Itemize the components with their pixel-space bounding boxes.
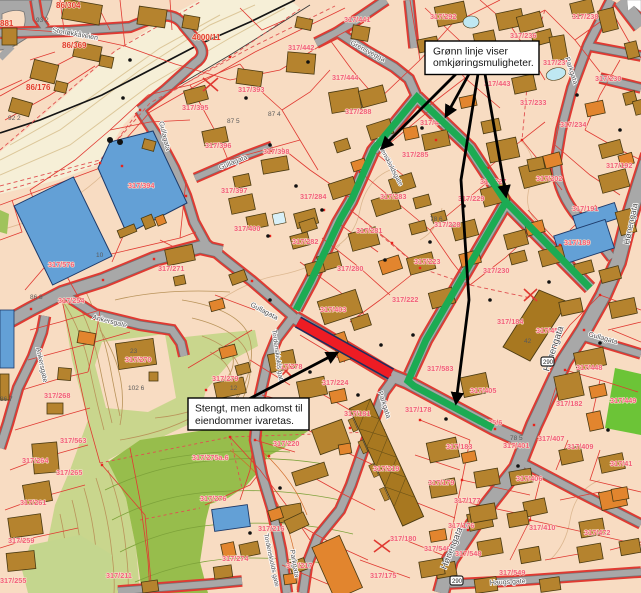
svg-text:317/583: 317/583 bbox=[427, 364, 453, 373]
svg-text:317/406: 317/406 bbox=[516, 474, 542, 483]
svg-text:317/211: 317/211 bbox=[106, 571, 132, 580]
svg-text:317/230: 317/230 bbox=[595, 74, 621, 83]
svg-text:317/182: 317/182 bbox=[556, 399, 582, 408]
svg-text:317/405: 317/405 bbox=[470, 386, 496, 395]
svg-text:317/254: 317/254 bbox=[58, 296, 85, 305]
svg-text:78 6: 78 6 bbox=[430, 216, 443, 223]
svg-text:317/397: 317/397 bbox=[221, 186, 247, 195]
svg-text:23: 23 bbox=[130, 348, 138, 355]
svg-text:317/179: 317/179 bbox=[428, 478, 454, 487]
svg-text:Stengt, men adkomst til: Stengt, men adkomst til bbox=[195, 404, 303, 415]
svg-text:317/548: 317/548 bbox=[455, 549, 481, 558]
svg-text:317/276: 317/276 bbox=[200, 494, 226, 503]
svg-text:317/202: 317/202 bbox=[536, 174, 562, 183]
svg-text:317/270: 317/270 bbox=[125, 355, 151, 364]
svg-text:317/230: 317/230 bbox=[483, 266, 509, 275]
svg-text:eiendommer ivaretas.: eiendommer ivaretas. bbox=[195, 416, 294, 427]
svg-text:102 6: 102 6 bbox=[128, 385, 145, 392]
svg-text:87 5: 87 5 bbox=[227, 118, 240, 125]
svg-text:12: 12 bbox=[230, 385, 238, 392]
svg-text:317/398: 317/398 bbox=[263, 147, 289, 156]
svg-text:93 2: 93 2 bbox=[36, 17, 49, 24]
svg-text:317/271: 317/271 bbox=[158, 264, 184, 273]
svg-text:317/184: 317/184 bbox=[497, 317, 524, 326]
svg-text:317/407: 317/407 bbox=[538, 434, 564, 443]
svg-text:86/369: 86/369 bbox=[62, 41, 87, 50]
svg-text:86 8: 86 8 bbox=[30, 294, 43, 301]
svg-text:317/236: 317/236 bbox=[510, 31, 536, 40]
svg-text:290: 290 bbox=[543, 360, 554, 366]
svg-text:317/259: 317/259 bbox=[8, 536, 34, 545]
svg-text:317/233: 317/233 bbox=[520, 98, 546, 107]
svg-text:317/282: 317/282 bbox=[292, 237, 318, 246]
svg-text:317/576: 317/576 bbox=[48, 260, 74, 269]
svg-text:317/181: 317/181 bbox=[344, 409, 370, 418]
svg-text:317/255: 317/255 bbox=[0, 576, 26, 585]
svg-text:317/268: 317/268 bbox=[44, 391, 70, 400]
svg-text:87 4: 87 4 bbox=[268, 111, 281, 118]
svg-text:86/304: 86/304 bbox=[56, 1, 81, 10]
svg-text:317/175: 317/175 bbox=[370, 571, 396, 580]
svg-text:omkjøringsmuligheter.: omkjøringsmuligheter. bbox=[433, 58, 534, 69]
svg-text:317/403: 317/403 bbox=[320, 305, 346, 314]
svg-text:317/223: 317/223 bbox=[414, 257, 440, 266]
svg-text:317/264: 317/264 bbox=[22, 456, 49, 465]
svg-text:78 5: 78 5 bbox=[510, 435, 523, 442]
svg-text:317/220: 317/220 bbox=[273, 439, 299, 448]
svg-text:317/178: 317/178 bbox=[405, 405, 431, 414]
svg-text:317/283: 317/283 bbox=[380, 192, 406, 201]
svg-text:317/191: 317/191 bbox=[572, 204, 598, 213]
svg-text:317/183: 317/183 bbox=[446, 442, 472, 451]
svg-text:Grønn linje viser: Grønn linje viser bbox=[433, 47, 509, 58]
svg-text:317/238: 317/238 bbox=[572, 12, 598, 21]
svg-text:317/224: 317/224 bbox=[322, 378, 349, 387]
svg-text:317/234: 317/234 bbox=[560, 120, 587, 129]
svg-text:317/395: 317/395 bbox=[182, 103, 208, 112]
svg-text:86/176: 86/176 bbox=[26, 83, 51, 92]
svg-text:4000/11: 4000/11 bbox=[192, 33, 221, 42]
svg-text:317/401: 317/401 bbox=[503, 441, 529, 450]
svg-text:42: 42 bbox=[524, 338, 532, 345]
svg-text:317/442: 317/442 bbox=[288, 43, 314, 52]
svg-text:317/284: 317/284 bbox=[300, 192, 327, 201]
svg-text:317/288: 317/288 bbox=[345, 107, 371, 116]
svg-text:317/549: 317/549 bbox=[499, 568, 525, 577]
svg-text:317/281: 317/281 bbox=[356, 226, 382, 235]
svg-text:317/285: 317/285 bbox=[402, 150, 428, 159]
svg-text:317/400: 317/400 bbox=[234, 224, 260, 233]
svg-text:317/472: 317/472 bbox=[584, 528, 610, 537]
svg-text:317/192: 317/192 bbox=[606, 161, 632, 170]
svg-text:317/265: 317/265 bbox=[56, 468, 82, 477]
svg-text:317/177: 317/177 bbox=[454, 496, 480, 505]
svg-text:317/563: 317/563 bbox=[60, 436, 86, 445]
svg-text:317/393: 317/393 bbox=[238, 85, 264, 94]
svg-text:317/222: 317/222 bbox=[392, 295, 418, 304]
svg-text:317/394: 317/394 bbox=[128, 181, 155, 190]
svg-text:290: 290 bbox=[452, 579, 463, 585]
svg-text:881: 881 bbox=[0, 19, 14, 28]
svg-text:10: 10 bbox=[96, 252, 104, 259]
svg-text:317/261: 317/261 bbox=[20, 498, 46, 507]
svg-text:92 2: 92 2 bbox=[8, 115, 21, 122]
svg-text:317/410: 317/410 bbox=[529, 523, 555, 532]
svg-text:317/41: 317/41 bbox=[610, 459, 632, 468]
svg-text:317/292: 317/292 bbox=[430, 12, 456, 21]
svg-text:86 7: 86 7 bbox=[0, 396, 13, 403]
svg-text:317/396: 317/396 bbox=[205, 141, 231, 150]
svg-text:317/275a.6: 317/275a.6 bbox=[192, 453, 229, 462]
svg-text:317/449: 317/449 bbox=[610, 396, 636, 405]
svg-text:317/219: 317/219 bbox=[373, 464, 399, 473]
svg-text:317/279: 317/279 bbox=[212, 374, 238, 383]
svg-text:317/274: 317/274 bbox=[222, 554, 249, 563]
svg-text:317/280: 317/280 bbox=[337, 264, 363, 273]
svg-text:317/444: 317/444 bbox=[332, 73, 359, 82]
svg-text:317/448: 317/448 bbox=[576, 363, 602, 372]
svg-text:317/216: 317/216 bbox=[258, 524, 284, 533]
svg-text:317/409: 317/409 bbox=[567, 442, 593, 451]
svg-text:317/189: 317/189 bbox=[564, 238, 590, 247]
svg-text:317/441: 317/441 bbox=[344, 15, 370, 24]
svg-text:317/180: 317/180 bbox=[390, 534, 416, 543]
